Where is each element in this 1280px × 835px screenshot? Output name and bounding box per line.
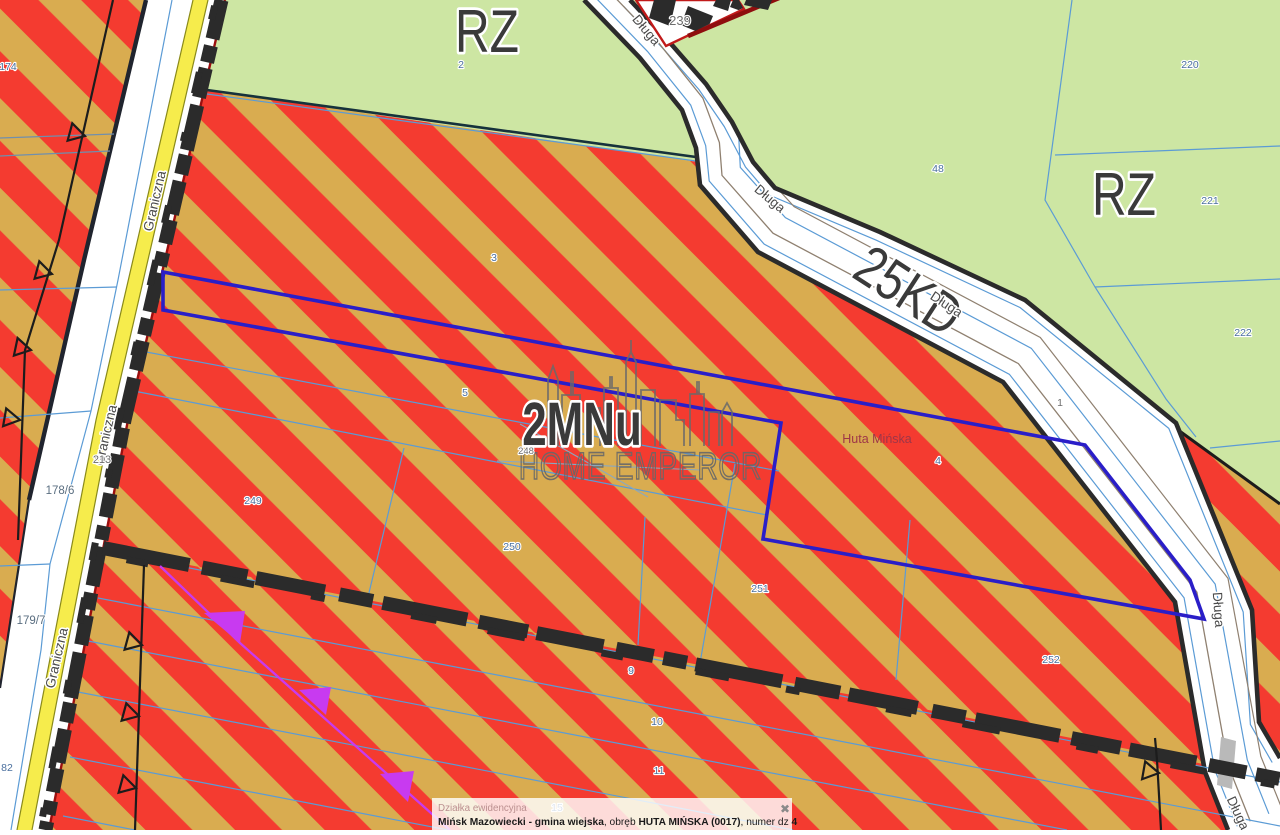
svg-text:Mińsk Mazowiecki - gmina wiejs: Mińsk Mazowiecki - gmina wiejska, obręb … [438, 815, 798, 828]
svg-text:10: 10 [651, 716, 663, 728]
svg-text:3: 3 [491, 252, 497, 264]
svg-text:4: 4 [935, 455, 941, 467]
svg-text:178/6: 178/6 [46, 485, 75, 497]
svg-text:2MNu: 2MNu [522, 391, 642, 459]
svg-text:2: 2 [458, 59, 464, 71]
svg-text:82: 82 [1, 762, 13, 774]
svg-text:5: 5 [462, 387, 468, 399]
svg-text:220: 220 [1181, 59, 1199, 71]
svg-text:9: 9 [628, 665, 634, 677]
svg-text:RZ: RZ [1092, 161, 1156, 228]
svg-text:251: 251 [751, 583, 769, 595]
svg-text:Długa: Długa [1210, 592, 1227, 629]
svg-text:248: 248 [518, 446, 534, 457]
svg-text:11: 11 [654, 765, 665, 777]
svg-text:222: 222 [1234, 327, 1252, 339]
svg-text:179/7: 179/7 [17, 615, 46, 627]
svg-text:Huta Mińska: Huta Mińska [842, 432, 912, 446]
svg-text:Działka ewidencyjna: Działka ewidencyjna [438, 803, 527, 814]
svg-text:213: 213 [93, 454, 111, 466]
svg-text:252: 252 [1042, 654, 1060, 666]
svg-text:✖: ✖ [780, 802, 790, 816]
svg-text:239: 239 [669, 13, 691, 28]
svg-text:249: 249 [244, 495, 262, 507]
svg-text:48: 48 [932, 163, 944, 175]
svg-text:250: 250 [503, 541, 521, 553]
svg-text:174: 174 [0, 61, 17, 73]
svg-text:221: 221 [1201, 195, 1219, 207]
svg-text:1: 1 [1057, 397, 1063, 409]
svg-text:RZ: RZ [455, 0, 519, 65]
